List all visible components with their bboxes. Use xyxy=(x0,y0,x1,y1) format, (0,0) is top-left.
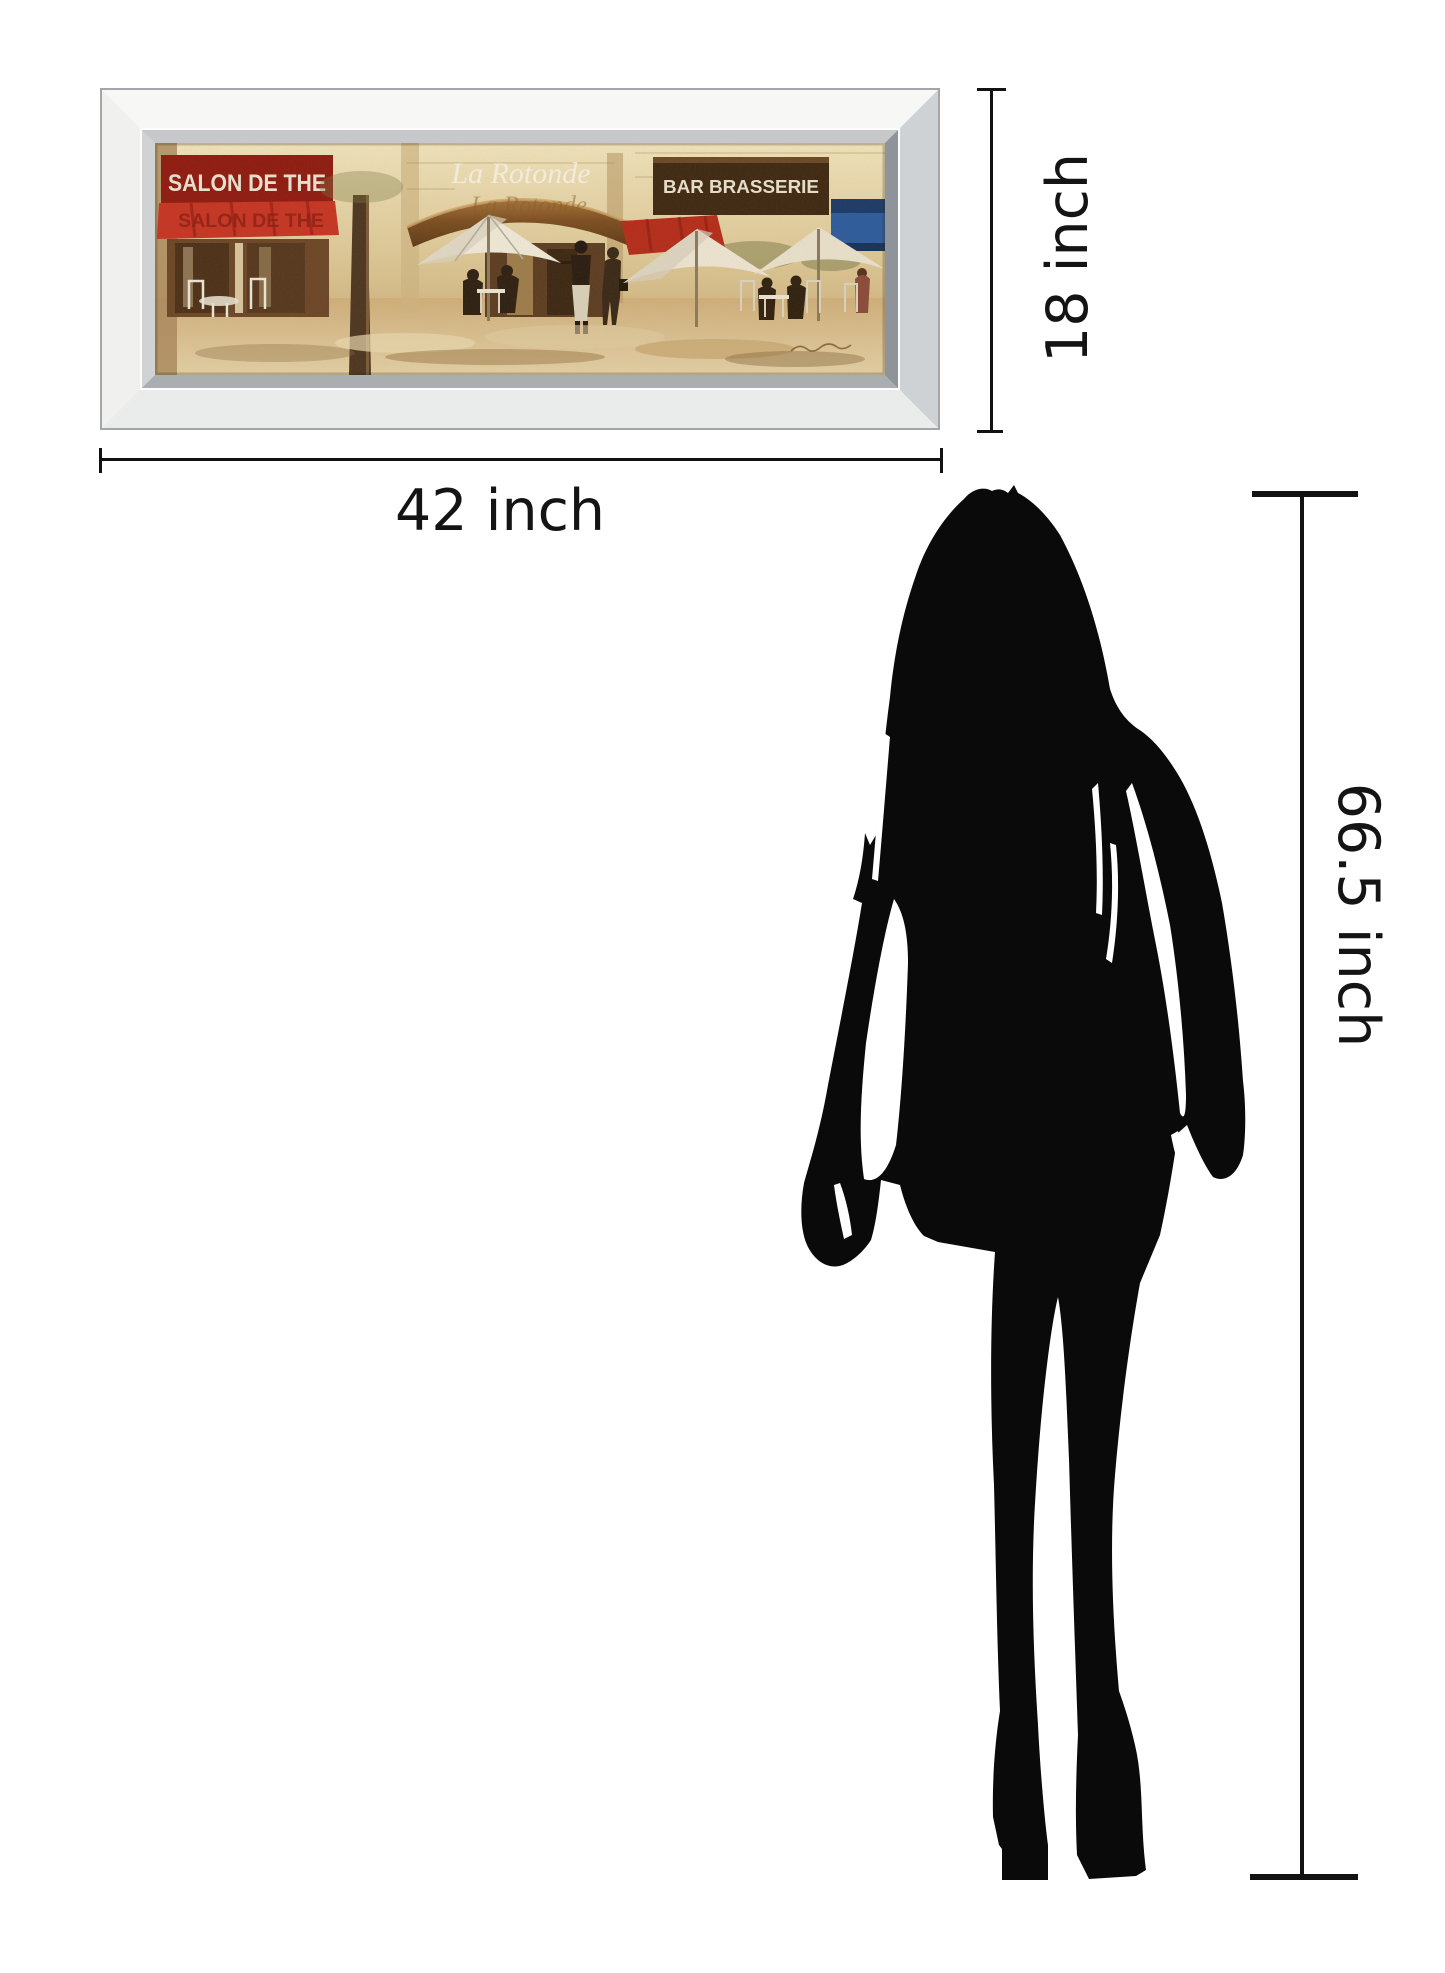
woman-silhouette xyxy=(788,483,1260,1883)
height-dimension-cap-bottom xyxy=(977,430,1003,433)
width-dimension-line xyxy=(100,458,942,461)
width-dimension-cap-left xyxy=(99,448,102,473)
width-dimension-label: 42 inch xyxy=(340,482,660,540)
frame-outer-band: SALON DE THE SALON DE THE xyxy=(102,90,938,428)
height-dimension-line xyxy=(990,90,993,433)
width-dimension-cap-right xyxy=(940,448,943,473)
height-dimension-label: 18 inch xyxy=(1039,128,1097,388)
figure-height-cap-top xyxy=(1252,491,1358,497)
mirror-frame: SALON DE THE SALON DE THE xyxy=(100,88,940,430)
cafe-painting: SALON DE THE SALON DE THE xyxy=(155,143,885,375)
figure-height-dimension-label: 66.5 inch xyxy=(1329,765,1387,1065)
figure-height-dimension-line xyxy=(1300,493,1304,1878)
product-dimensions-diagram: SALON DE THE SALON DE THE xyxy=(0,0,1445,1973)
paint-grain xyxy=(155,143,885,375)
figure-height-cap-bottom xyxy=(1250,1874,1358,1880)
frame-bevel-lip: SALON DE THE SALON DE THE xyxy=(142,130,898,388)
height-dimension-cap-top xyxy=(977,88,1006,91)
